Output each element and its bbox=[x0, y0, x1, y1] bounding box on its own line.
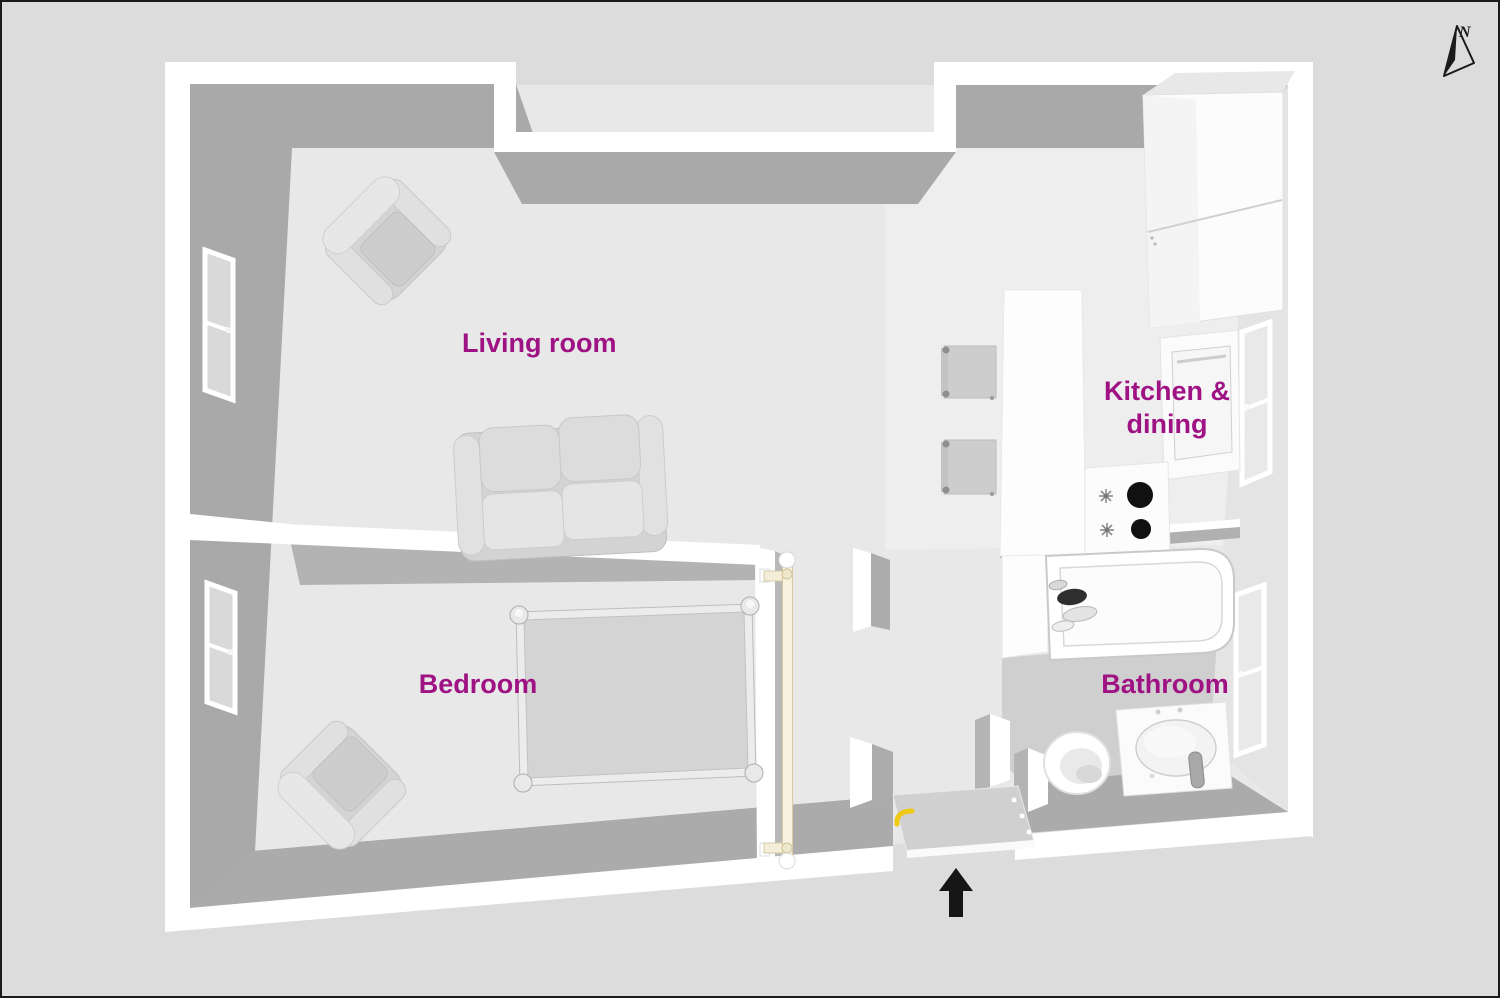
counter-table bbox=[1000, 290, 1086, 556]
floorplan-drawing bbox=[0, 0, 1500, 998]
north-wall-top-west bbox=[165, 62, 515, 84]
stove-knob bbox=[1100, 523, 1114, 537]
entry-door bbox=[893, 786, 1034, 858]
stove-knob bbox=[1099, 489, 1113, 503]
bed bbox=[510, 597, 763, 792]
recess-wall-face bbox=[494, 152, 956, 204]
kitchen-label-line2: dining bbox=[1092, 406, 1242, 442]
kitchen-label-line1: Kitchen & bbox=[1104, 376, 1230, 406]
recess-wall-top bbox=[494, 132, 956, 152]
living-room-window bbox=[205, 250, 233, 400]
bathroom-window bbox=[1236, 585, 1264, 755]
compass-north-label: N bbox=[1459, 24, 1471, 42]
bathtub bbox=[1046, 549, 1234, 660]
fridge-freezer bbox=[1143, 71, 1295, 328]
burner-small bbox=[1131, 519, 1151, 539]
floorplan-canvas: Living room Kitchen & dining Bedroom Bat… bbox=[0, 0, 1500, 998]
entrance-arrow-icon bbox=[939, 868, 973, 917]
kitchen-dining-label: Kitchen & dining bbox=[1092, 376, 1242, 442]
washbasin-vanity bbox=[1116, 702, 1232, 796]
east-wall-top bbox=[1288, 62, 1313, 838]
toilet bbox=[1044, 732, 1110, 794]
bathroom-label: Bathroom bbox=[1100, 669, 1230, 699]
kitchen-window bbox=[1242, 322, 1270, 484]
bedroom-label: Bedroom bbox=[416, 669, 540, 699]
sofa bbox=[452, 413, 669, 562]
dining-chair bbox=[941, 346, 996, 400]
living-room-label: Living room bbox=[462, 328, 612, 358]
bedroom-window bbox=[207, 583, 235, 712]
burner-large bbox=[1127, 482, 1153, 508]
west-wall-top bbox=[165, 62, 190, 932]
dining-chair bbox=[941, 440, 996, 496]
